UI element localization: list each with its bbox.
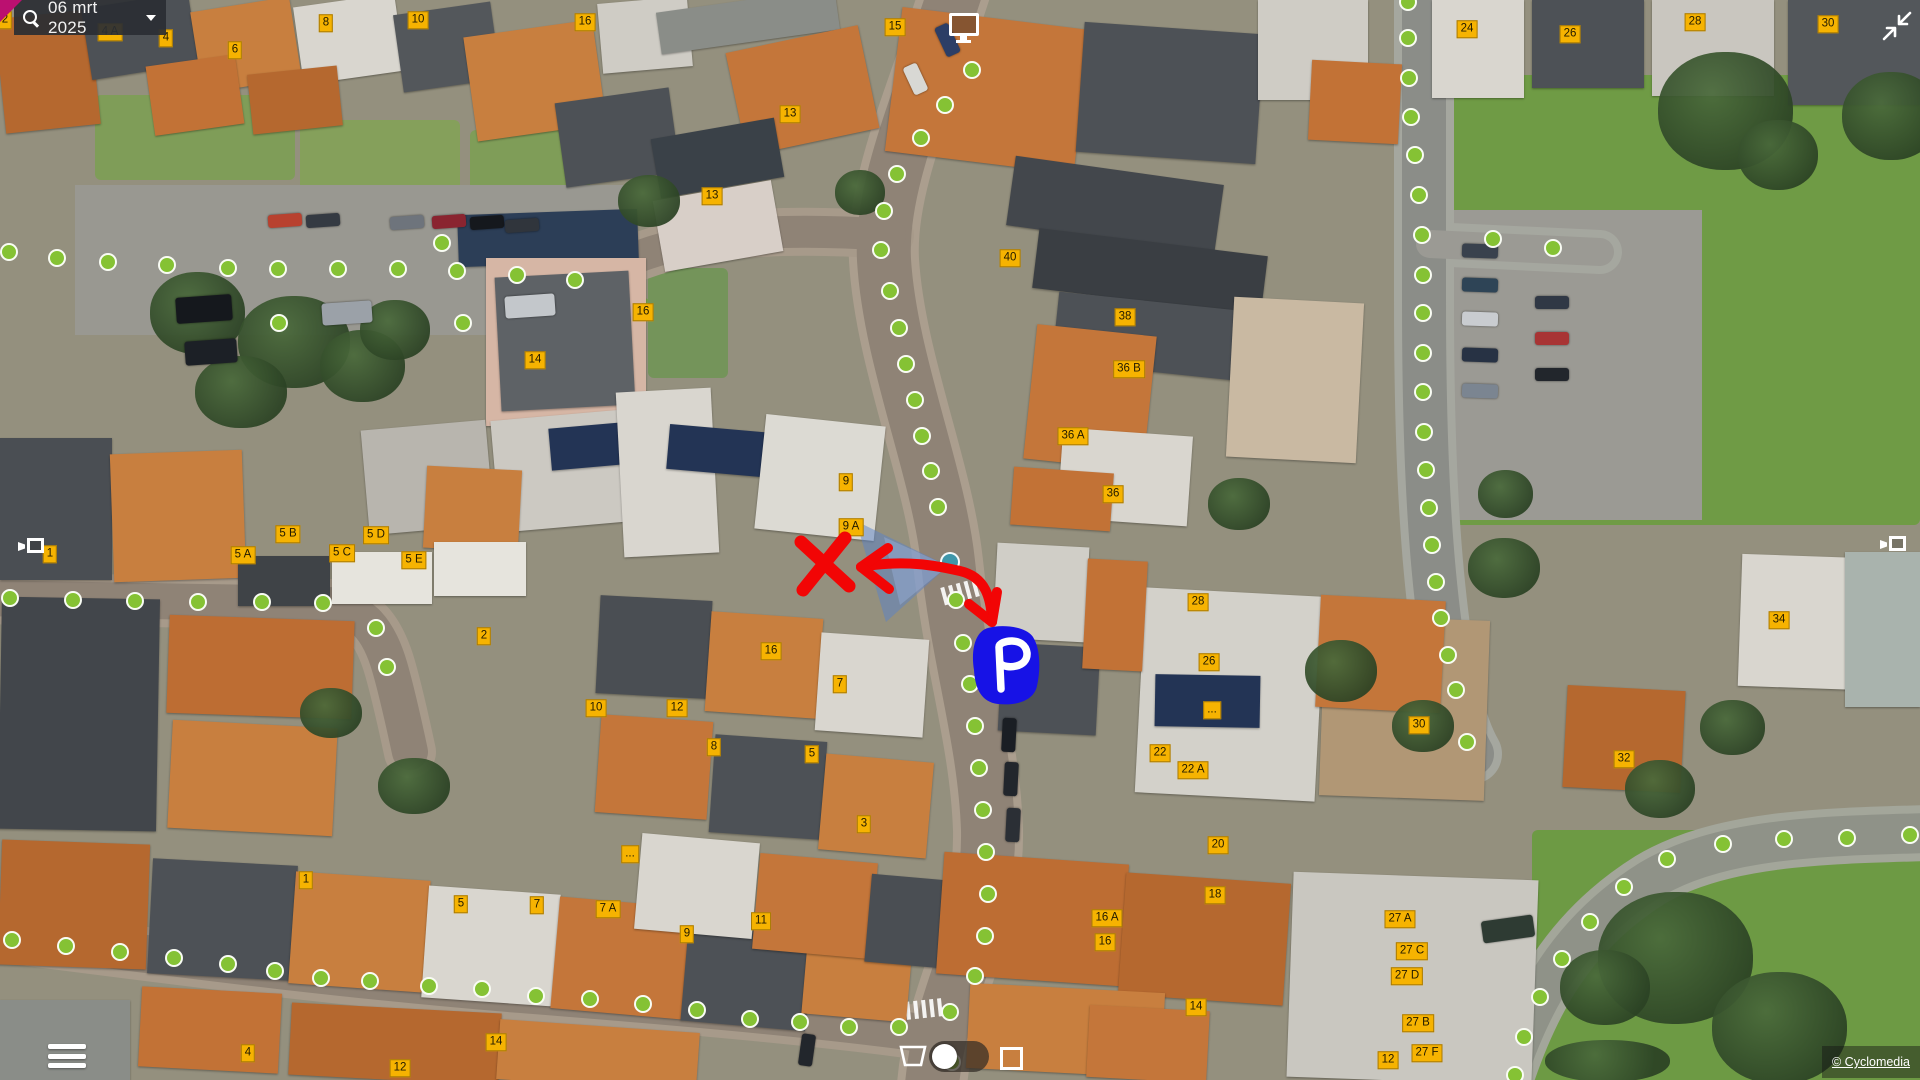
- chevron-down-icon[interactable]: [146, 15, 156, 21]
- view-mode-toggles: [896, 1038, 1026, 1078]
- oblique-view-toggle[interactable]: [896, 1044, 930, 1070]
- red-sketch-annotation: [801, 538, 997, 622]
- date-label[interactable]: 06 mrt 2025: [48, 0, 136, 38]
- camera-body: [1889, 536, 1906, 551]
- oblique-camera-icon-left[interactable]: [18, 538, 44, 555]
- map-view-toggle[interactable]: [1000, 1047, 1023, 1070]
- attribution-bar: © Cyclomedia: [1822, 1046, 1920, 1078]
- camera-lens: [18, 542, 25, 551]
- hamburger-menu-icon[interactable]: [48, 1044, 86, 1068]
- trapezoid-icon: [901, 1047, 925, 1065]
- date-selector[interactable]: 06 mrt 2025: [14, 0, 166, 35]
- monitor-screen: [949, 13, 979, 36]
- attribution-link[interactable]: © Cyclomedia: [1832, 1055, 1910, 1069]
- search-icon[interactable]: [22, 9, 40, 27]
- camera-lens: [1880, 540, 1887, 549]
- collapse-arrows-icon[interactable]: [1878, 8, 1918, 48]
- monitor-base: [956, 40, 971, 43]
- camera-body: [27, 538, 44, 553]
- sketch-annotation-layer: [0, 0, 1920, 1080]
- aerial-map-canvas[interactable]: 24 A46810161513131614403836 B36 A3624262…: [0, 0, 1920, 1080]
- oblique-camera-icon-right[interactable]: [1880, 536, 1906, 553]
- viewpoint-monitor-icon[interactable]: [949, 13, 977, 45]
- panorama-view-toggle[interactable]: [932, 1044, 957, 1069]
- parking-marker: [973, 626, 1039, 704]
